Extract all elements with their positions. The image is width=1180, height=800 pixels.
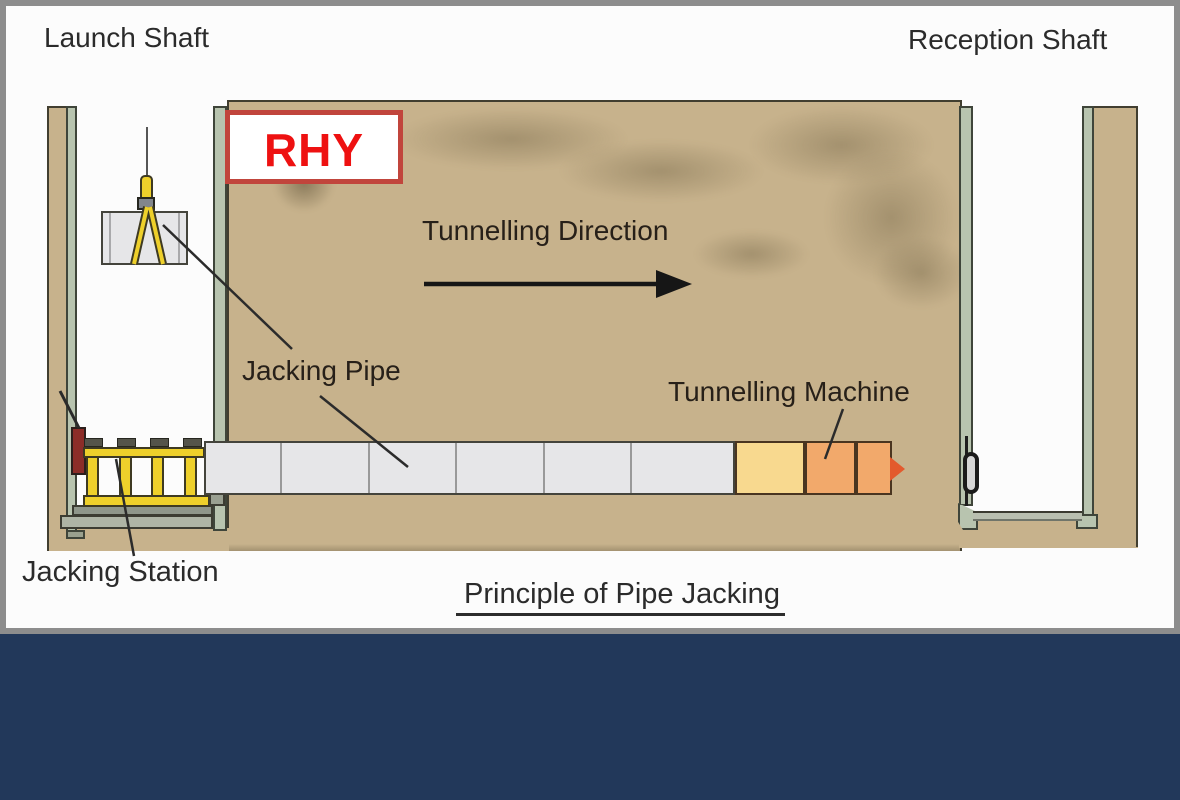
jacking-frame-bottom-beam (83, 495, 210, 507)
launch-shaft-label: Launch Shaft (44, 22, 209, 54)
soil-band-right-of-reception-shaft (1094, 106, 1138, 547)
reception-shaft-label: Reception Shaft (908, 24, 1107, 56)
pipe-joint (368, 443, 370, 493)
jacking-station-label: Jacking Station (22, 556, 219, 589)
pipe-joint (630, 443, 632, 493)
soil-band-left-of-launch-shaft (47, 106, 66, 551)
entrance-seal (963, 452, 979, 494)
jacking-frame-cap-block (84, 438, 103, 447)
figure-caption: Principle of Pipe Jacking (456, 578, 785, 616)
jacking-frame-post (119, 456, 132, 497)
tunnelling-machine-body-section (805, 441, 856, 495)
tunnelling-direction-label: Tunnelling Direction (422, 215, 668, 247)
tunnelling-machine-head-section (856, 441, 892, 495)
pipe-jacking-figure: RHY Launch Shaft Reception Shaft Tunnell… (0, 0, 1180, 800)
soil-texture-smudge (874, 237, 962, 309)
soil-texture-smudge (559, 140, 764, 202)
pipe-end-cap (178, 213, 180, 263)
jacking-frame-top-beam (83, 447, 205, 458)
footer-navy-band (0, 634, 1180, 800)
jacking-frame-cap-block (183, 438, 202, 447)
jacking-frame-post (184, 456, 197, 497)
rhy-watermark-text: RHY (264, 118, 364, 177)
pipe-joint (280, 443, 282, 493)
pipe-end-cap (109, 213, 111, 263)
tunnelling-machine-label: Tunnelling Machine (668, 376, 910, 408)
pipe-joint (455, 443, 457, 493)
jacking-frame-cap-block (117, 438, 136, 447)
jacking-frame-post (86, 456, 99, 497)
reception-shaft-floor (973, 511, 1082, 521)
pipe-joint (543, 443, 545, 493)
lowered-jacking-pipe (101, 211, 188, 265)
launch-shaft-left-wall-foot (66, 530, 85, 539)
tunnelling-machine-shield-section (735, 441, 805, 495)
jacking-frame-cap-block (150, 438, 169, 447)
rhy-watermark-box: RHY (225, 110, 403, 184)
soil-bottom-shadow (229, 544, 962, 551)
launch-shaft-floor-slab (60, 515, 213, 529)
jacking-pipe-string (204, 441, 735, 495)
crane-hook (137, 197, 155, 210)
soil-texture-smudge (694, 230, 809, 278)
jacking-frame-post (151, 456, 164, 497)
jacking-pipe-label: Jacking Pipe (242, 355, 401, 387)
reception-shaft-right-wall (1082, 106, 1094, 522)
crane-shackle (140, 175, 153, 199)
crane-cable (146, 127, 148, 177)
